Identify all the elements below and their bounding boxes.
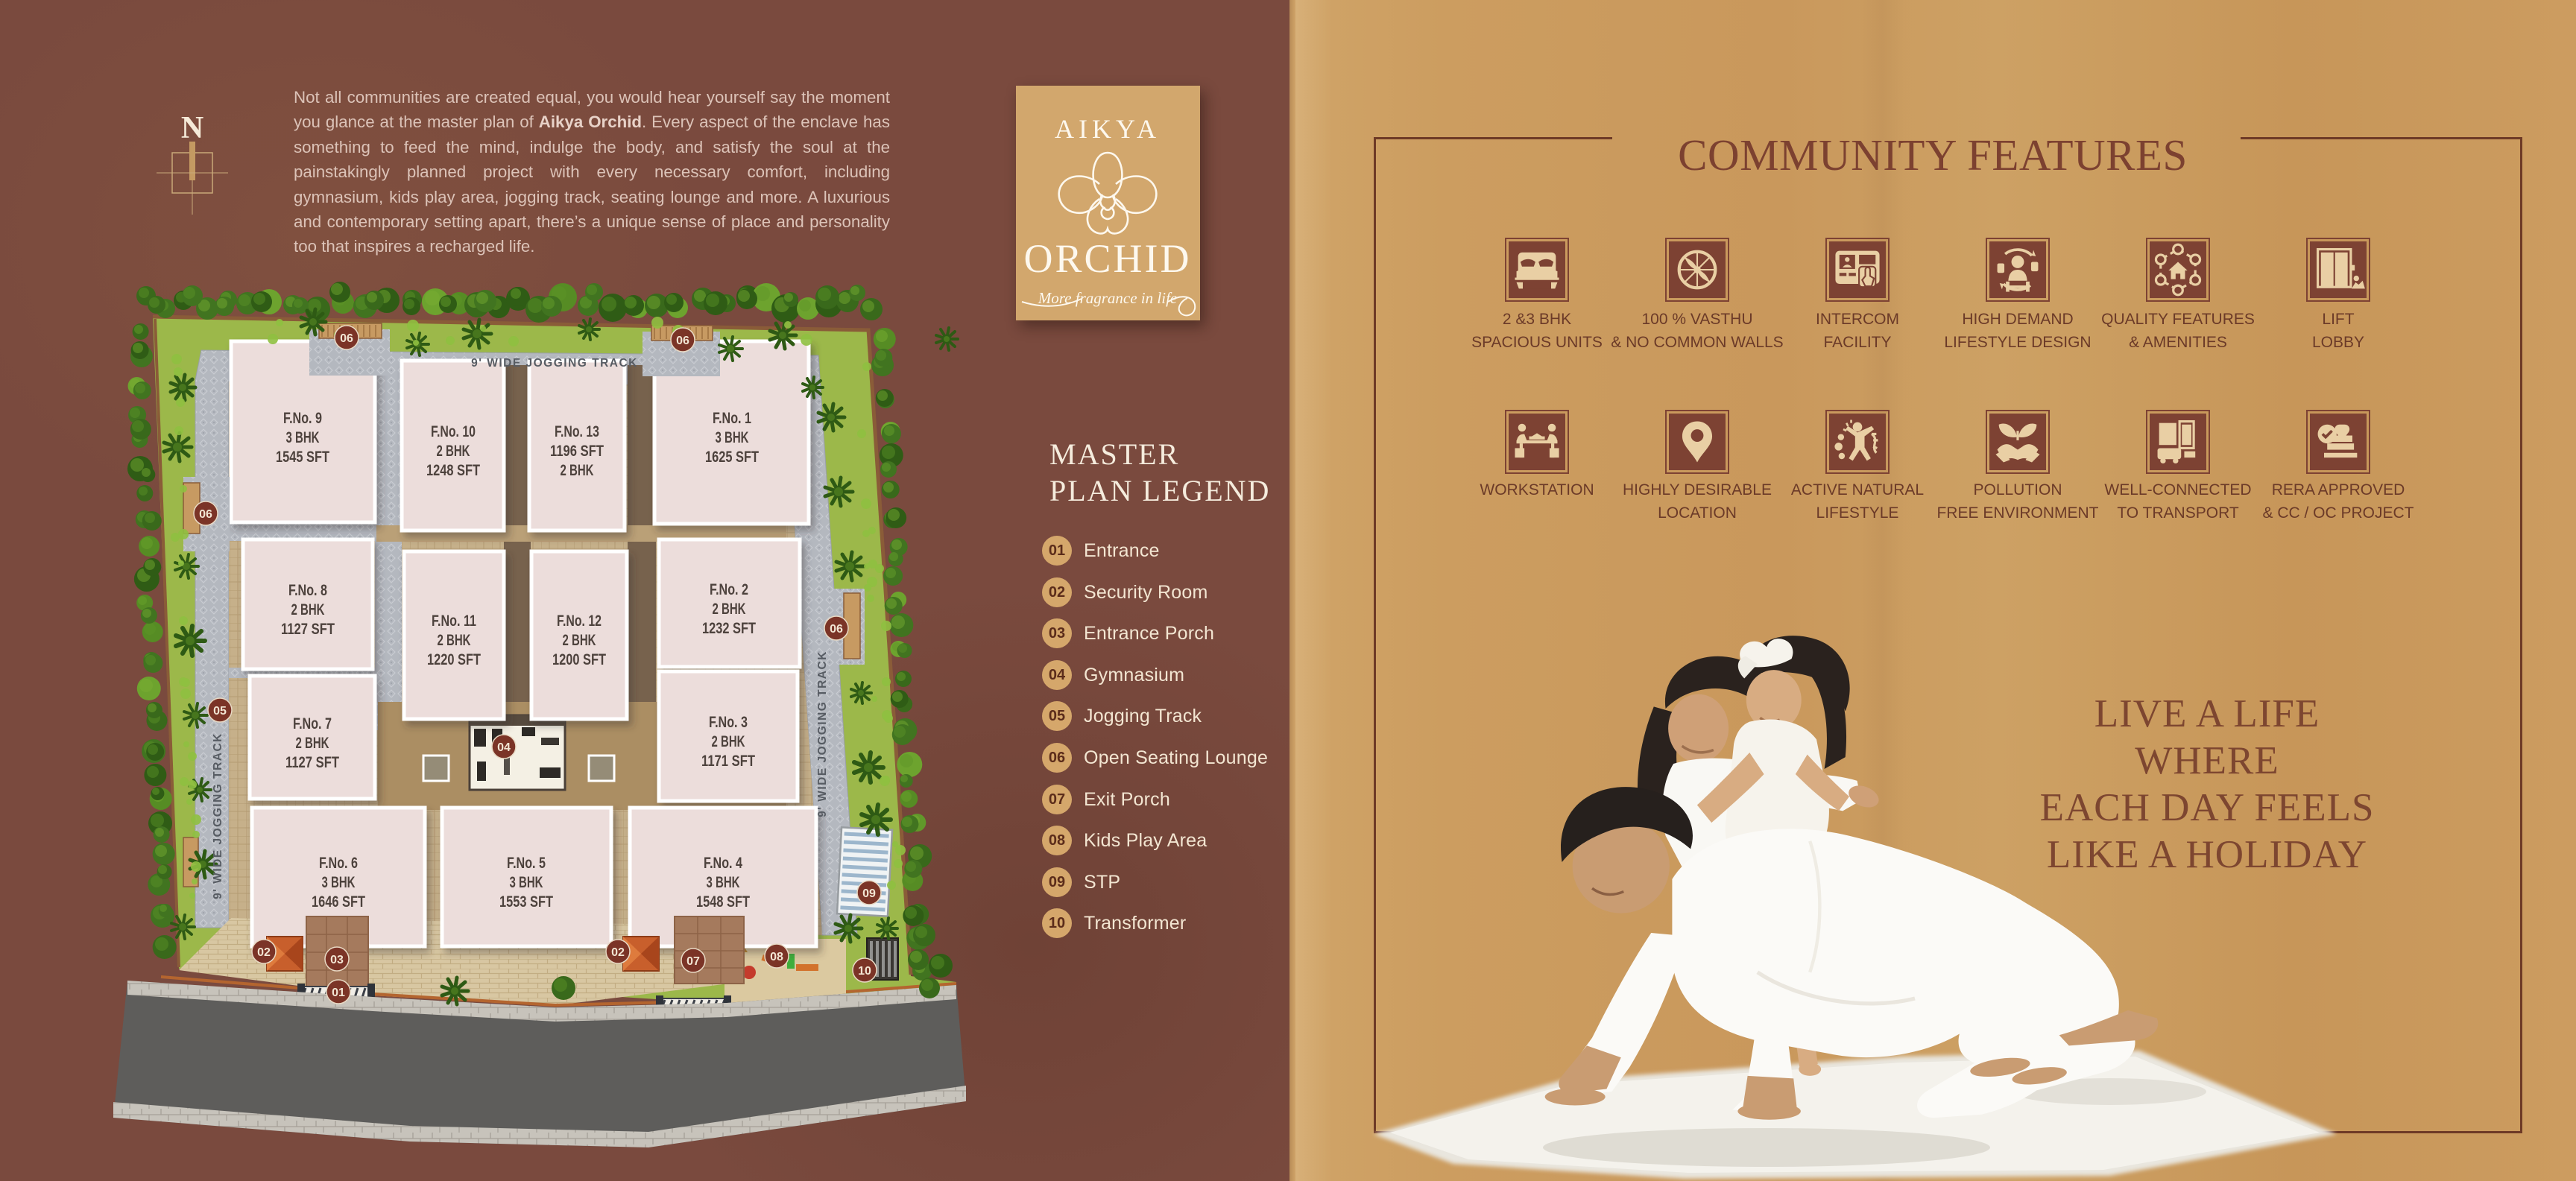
svg-text:05: 05 (213, 705, 227, 718)
svg-text:1127 SFT: 1127 SFT (285, 754, 339, 771)
svg-text:3 BHK: 3 BHK (707, 874, 740, 891)
svg-text:3 BHK: 3 BHK (322, 874, 356, 891)
svg-text:2 BHK: 2 BHK (437, 443, 470, 460)
svg-text:3 BHK: 3 BHK (510, 874, 543, 891)
svg-text:F.No. 7: F.No. 7 (293, 715, 332, 732)
svg-text:AIKYA: AIKYA (1055, 114, 1161, 144)
svg-text:2 BHK: 2 BHK (296, 735, 329, 752)
svg-text:06: 06 (676, 335, 689, 347)
svg-text:9' WIDE JOGGING TRACK: 9' WIDE JOGGING TRACK (816, 650, 829, 817)
svg-text:1548 SFT: 1548 SFT (696, 893, 750, 911)
svg-text:3 BHK: 3 BHK (716, 429, 749, 446)
svg-text:02: 02 (611, 946, 625, 959)
svg-text:ORCHID: ORCHID (1023, 236, 1191, 281)
svg-text:07: 07 (686, 955, 700, 968)
svg-text:06: 06 (199, 508, 212, 521)
svg-text:1127 SFT: 1127 SFT (281, 621, 335, 638)
svg-text:2 BHK: 2 BHK (438, 632, 471, 649)
svg-text:F.No. 4: F.No. 4 (704, 855, 742, 872)
svg-text:1625 SFT: 1625 SFT (705, 449, 759, 466)
svg-text:1248 SFT: 1248 SFT (426, 462, 480, 479)
svg-text:3 BHK: 3 BHK (286, 429, 320, 446)
svg-text:F.No. 5: F.No. 5 (507, 855, 546, 872)
svg-text:F.No. 8: F.No. 8 (288, 582, 327, 599)
svg-text:F.No. 13: F.No. 13 (555, 423, 599, 440)
svg-text:10: 10 (858, 965, 871, 978)
svg-text:1171 SFT: 1171 SFT (701, 753, 755, 770)
svg-text:2 BHK: 2 BHK (563, 632, 596, 649)
svg-text:1646 SFT: 1646 SFT (312, 893, 365, 911)
svg-text:2 BHK: 2 BHK (713, 601, 746, 618)
svg-text:F.No. 3: F.No. 3 (709, 714, 748, 731)
svg-text:2 BHK: 2 BHK (291, 601, 325, 618)
svg-text:1196 SFT: 1196 SFT (550, 443, 604, 460)
svg-text:2 BHK: 2 BHK (712, 733, 745, 750)
svg-text:9' WIDE JOGGING TRACK: 9' WIDE JOGGING TRACK (471, 357, 638, 370)
svg-text:02: 02 (257, 946, 271, 959)
svg-text:03: 03 (330, 954, 344, 966)
svg-text:06: 06 (830, 623, 843, 636)
svg-text:F.No. 12: F.No. 12 (557, 612, 602, 630)
svg-text:F.No. 10: F.No. 10 (431, 423, 476, 440)
svg-text:F.No. 2: F.No. 2 (710, 581, 748, 598)
svg-text:08: 08 (770, 951, 783, 963)
svg-text:1545 SFT: 1545 SFT (276, 449, 329, 466)
svg-text:04: 04 (497, 741, 511, 754)
svg-text:F.No. 9: F.No. 9 (283, 410, 322, 427)
svg-text:1200 SFT: 1200 SFT (552, 651, 606, 668)
svg-text:1220 SFT: 1220 SFT (427, 651, 481, 668)
svg-text:F.No. 6: F.No. 6 (319, 855, 358, 872)
svg-text:2 BHK: 2 BHK (561, 462, 594, 479)
svg-text:1553 SFT: 1553 SFT (499, 893, 553, 911)
svg-text:F.No. 11: F.No. 11 (432, 612, 476, 630)
svg-text:F.No. 1: F.No. 1 (713, 410, 751, 427)
svg-text:9' WIDE JOGGING TRACK: 9' WIDE JOGGING TRACK (212, 732, 224, 899)
svg-text:01: 01 (332, 987, 345, 999)
svg-text:06: 06 (340, 332, 353, 345)
svg-text:1232 SFT: 1232 SFT (702, 620, 756, 637)
svg-text:N: N (181, 111, 203, 145)
svg-text:09: 09 (862, 887, 876, 900)
svg-text:More fragrance in life: More fragrance in life (1038, 289, 1177, 307)
